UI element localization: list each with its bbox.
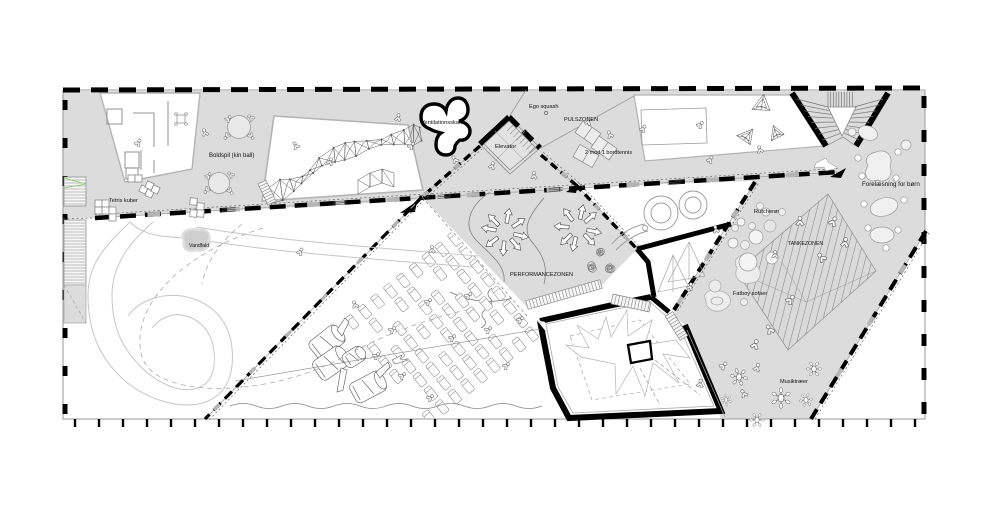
svg-text:Vandfald: Vandfald: [189, 243, 209, 249]
svg-text:Tetris kuber: Tetris kuber: [109, 198, 138, 204]
svg-text:Elevator: Elevator: [495, 144, 516, 150]
svg-text:Boldspil (kin ball): Boldspil (kin ball): [209, 153, 254, 159]
svg-text:Rutcherør: Rutcherør: [754, 209, 779, 215]
svg-text:Ego squash: Ego squash: [529, 104, 559, 110]
svg-text:TANKEZONEN: TANKEZONEN: [788, 241, 823, 247]
svg-text:Musiktræer: Musiktræer: [780, 379, 808, 385]
svg-text:PERFORMANCEZONEN: PERFORMANCEZONEN: [510, 272, 573, 278]
svg-text:PULSZONEN: PULSZONEN: [564, 117, 598, 123]
svg-text:2 mod 1 bordtennis: 2 mod 1 bordtennis: [585, 150, 632, 156]
svg-text:Ventilationsskakt: Ventilationsskakt: [421, 120, 464, 126]
svg-text:Forelæsning for børn: Forelæsning for børn: [862, 181, 920, 188]
svg-text:Fatboy sofaer: Fatboy sofaer: [733, 291, 767, 297]
